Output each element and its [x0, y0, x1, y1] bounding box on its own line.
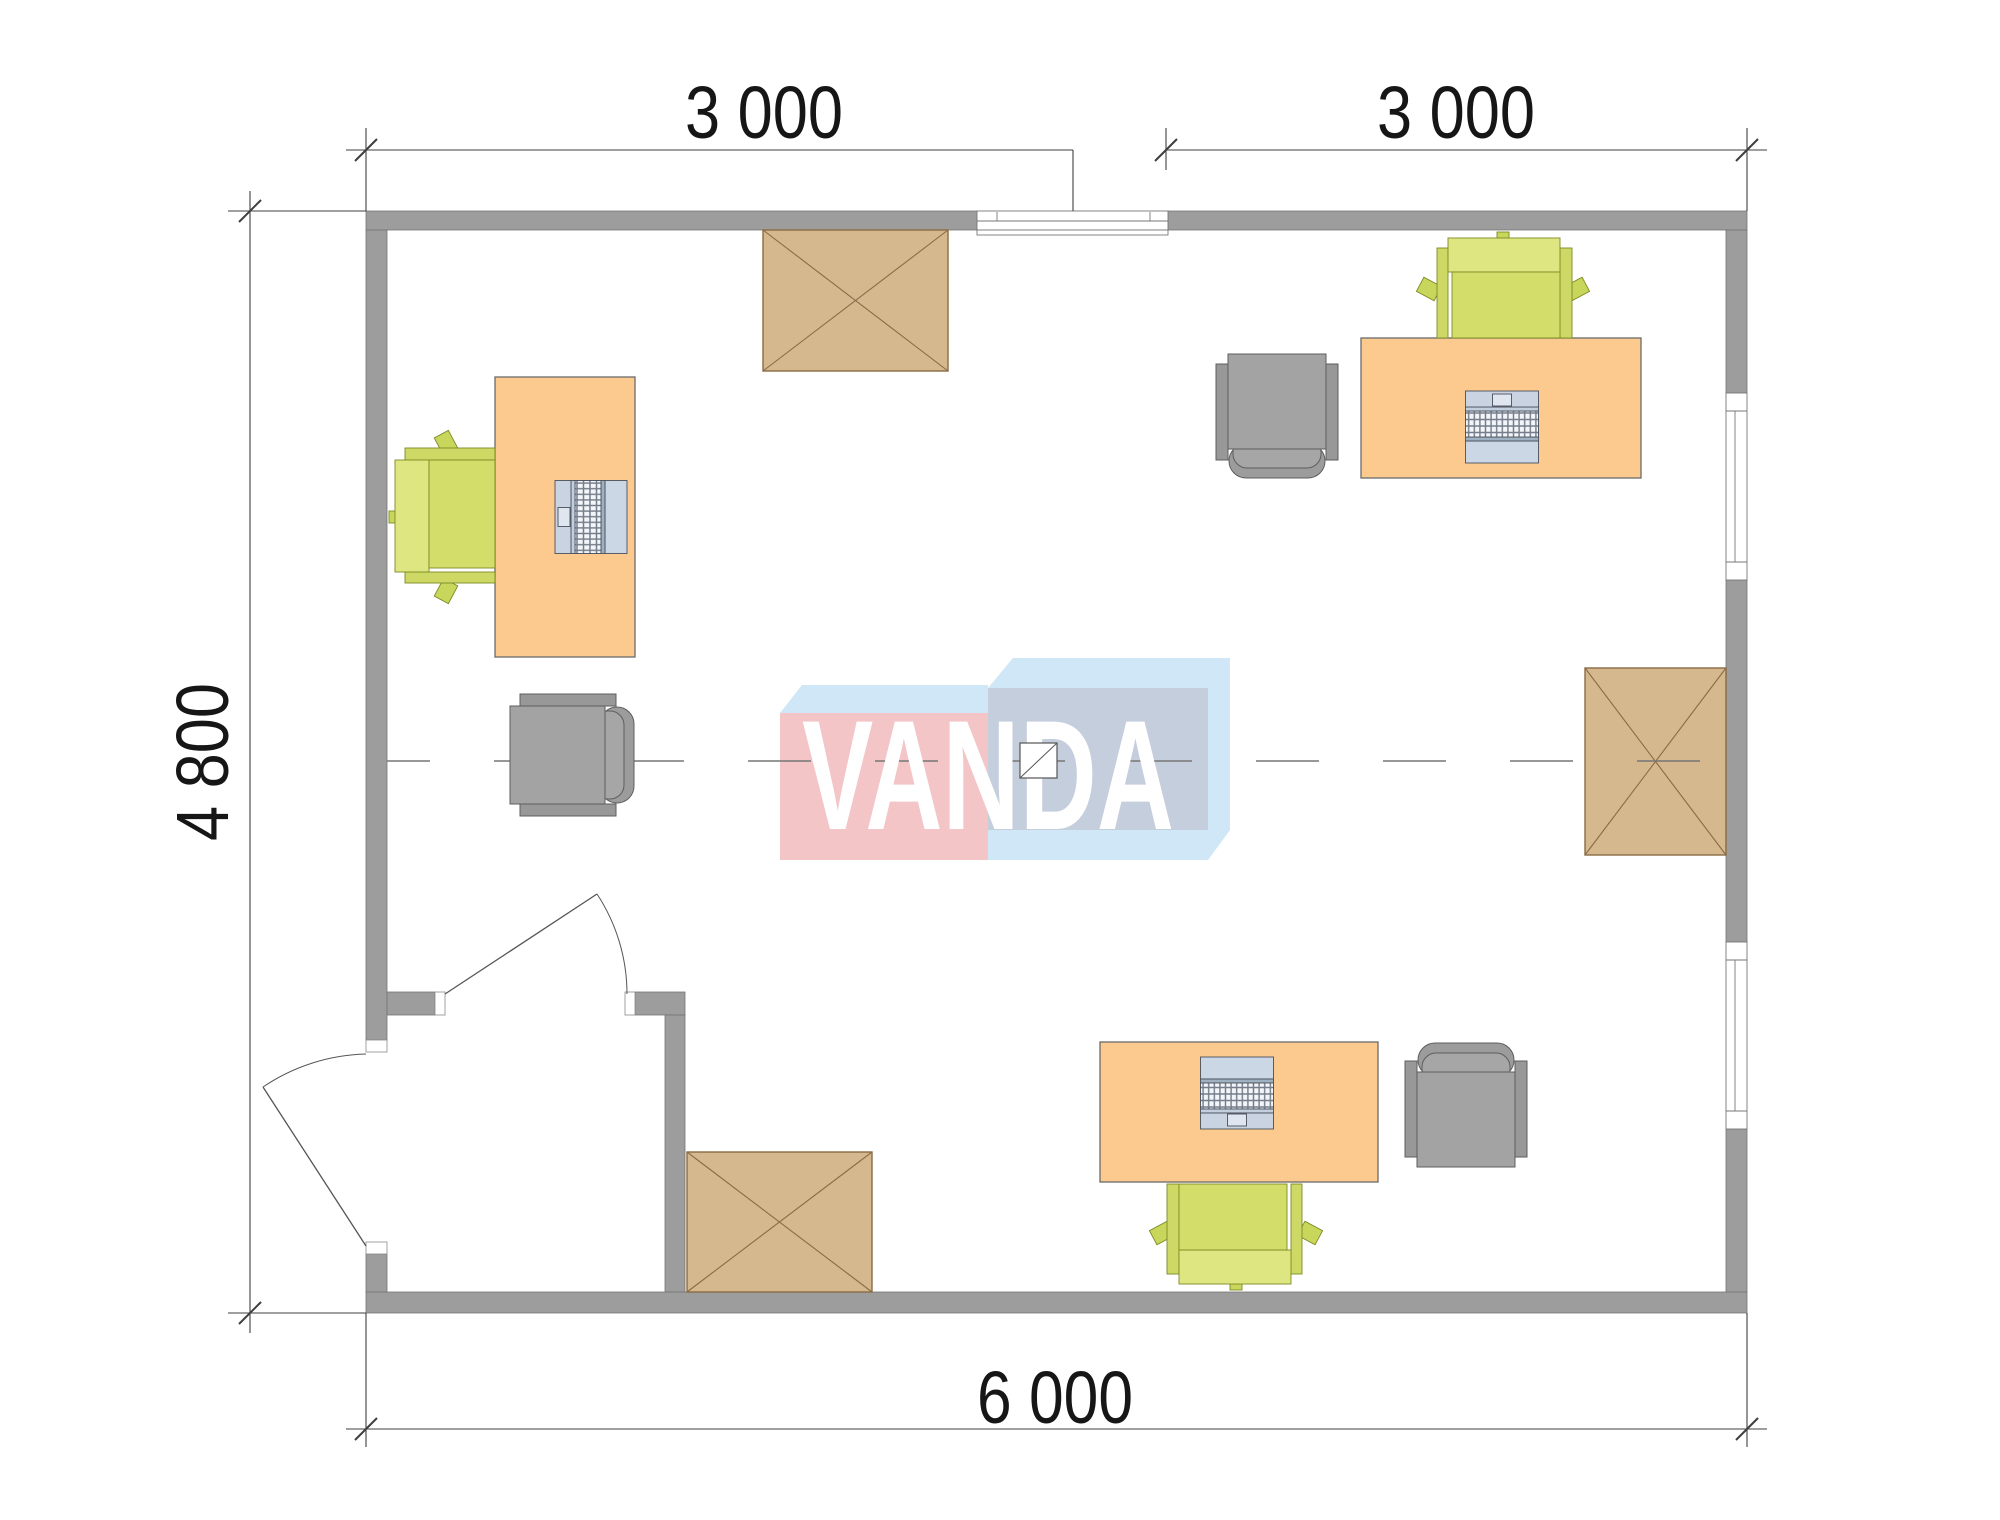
entrance-door — [263, 1054, 366, 1246]
guest-chair-top-right — [1216, 354, 1338, 478]
office-chair-left — [389, 430, 495, 603]
door-jambs — [366, 992, 635, 1254]
dim-text-left: 4 800 — [161, 683, 244, 841]
dim-text-top-left: 3 000 — [685, 71, 843, 154]
laptop-top-right-desk — [1466, 391, 1539, 463]
partition-wall-vertical — [665, 1015, 685, 1292]
laptop-bottom-desk — [1201, 1057, 1274, 1129]
interior-door — [445, 894, 627, 994]
top-wall-right — [1168, 211, 1747, 230]
jamb — [625, 992, 635, 1015]
top-wall-left — [366, 211, 977, 230]
window-sill — [977, 230, 1168, 235]
floor-plan-drawing: VANDA 3 000 3 000 4 800 6 000 — [0, 0, 2000, 1520]
door-swing-arc — [263, 1054, 366, 1087]
right-wall-middle — [1726, 580, 1747, 942]
door-leaf — [263, 1087, 366, 1246]
table-bottom-left — [687, 1152, 872, 1292]
jamb — [435, 992, 445, 1015]
window-frame — [1726, 393, 1747, 580]
bottom-wall — [366, 1292, 1747, 1313]
guest-chair-left — [510, 694, 634, 816]
axis-marker — [1020, 743, 1057, 778]
guest-chair-bottom — [1405, 1043, 1527, 1167]
dim-text-top-right: 3 000 — [1377, 71, 1535, 154]
floor-plan-canvas: VANDA 3 000 3 000 4 800 6 000 — [0, 0, 2000, 1520]
partition-wall-horizontal — [387, 992, 435, 1015]
window-right-lower — [1726, 942, 1747, 1129]
window-top — [977, 211, 1168, 235]
partition-wall-corner — [635, 992, 685, 1015]
right-wall-lower — [1726, 1129, 1747, 1292]
office-chair-bottom — [1149, 1184, 1322, 1290]
office-chair-top-right — [1416, 232, 1589, 338]
door-leaf — [445, 894, 597, 994]
left-wall-stub — [366, 1254, 387, 1292]
window-frame — [977, 211, 1168, 230]
door-swing-arc — [597, 894, 627, 994]
jamb — [366, 1040, 387, 1052]
right-wall-upper — [1726, 230, 1747, 393]
laptop-left-desk — [555, 481, 627, 554]
logo-text: VANDA — [802, 689, 1174, 863]
window-frame — [1726, 942, 1747, 1129]
table-top-center — [763, 230, 948, 371]
dim-text-bottom: 6 000 — [977, 1356, 1133, 1439]
left-wall-upper — [366, 230, 387, 1040]
window-right-upper — [1726, 393, 1747, 580]
jamb — [366, 1242, 387, 1254]
